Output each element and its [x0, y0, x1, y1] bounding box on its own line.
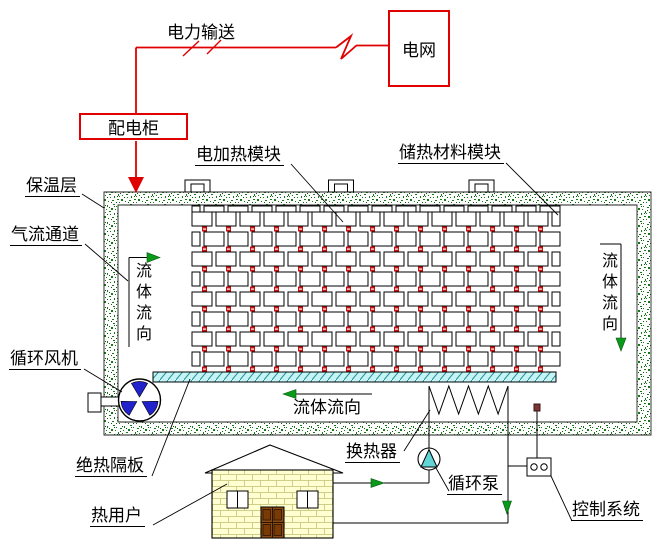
power-transmission-label: 电力输送 [167, 24, 235, 42]
insulation-layer-label: 保温层 [25, 177, 80, 197]
heat-exchanger-label: 换热器 [345, 443, 400, 463]
terminal-bump-icon [469, 180, 494, 192]
control-system-box [508, 404, 551, 476]
circulation-fan-icon [88, 379, 161, 421]
heat-exchanger-coil [429, 386, 508, 414]
heat-user-house-icon [205, 445, 343, 538]
house-door-icon [261, 507, 284, 538]
terminal-bump-icon [329, 180, 354, 192]
terminal-bump-icon [185, 180, 210, 192]
fluid-flow-bottom-label: 流体流向 [293, 399, 361, 417]
adiabatic-partition-label: 绝热隔板 [75, 457, 147, 477]
control-system-label: 控制系统 [571, 501, 643, 521]
storage-brick-matrix [192, 206, 560, 372]
heater-terminal-bumps [185, 180, 494, 192]
power-feed-arrow [128, 177, 144, 193]
house-window-icon [227, 491, 248, 508]
heat-user-label: 热用户 [90, 507, 145, 527]
circulation-pump-label: 循环泵 [447, 475, 502, 495]
circulation-pump-icon [418, 448, 440, 470]
power-grid-label: 电网 [402, 36, 436, 61]
fluid-flow-left-label: 流体流向 [132, 262, 150, 346]
fluid-flow-right-label: 流体流向 [598, 252, 616, 336]
thermal-storage-schematic: 电网 配电柜 电力输送 保温层 气流通道 电加热模块 储热材料模块 循环风机 绝… [0, 0, 659, 545]
heat-storage-module-label: 储热材料模块 [398, 144, 504, 164]
house-window-icon [297, 491, 318, 508]
circulation-fan-label: 循环风机 [9, 350, 81, 370]
air-flow-channel-label: 气流通道 [10, 226, 82, 246]
distribution-cabinet-label: 配电柜 [108, 114, 159, 139]
power-grid-box: 电网 [388, 10, 450, 87]
electric-heating-module-label: 电加热模块 [195, 146, 284, 166]
distribution-cabinet-box: 配电柜 [79, 113, 188, 140]
temperature-sensor-icon [534, 404, 540, 411]
adiabatic-partition-plate [153, 372, 556, 382]
